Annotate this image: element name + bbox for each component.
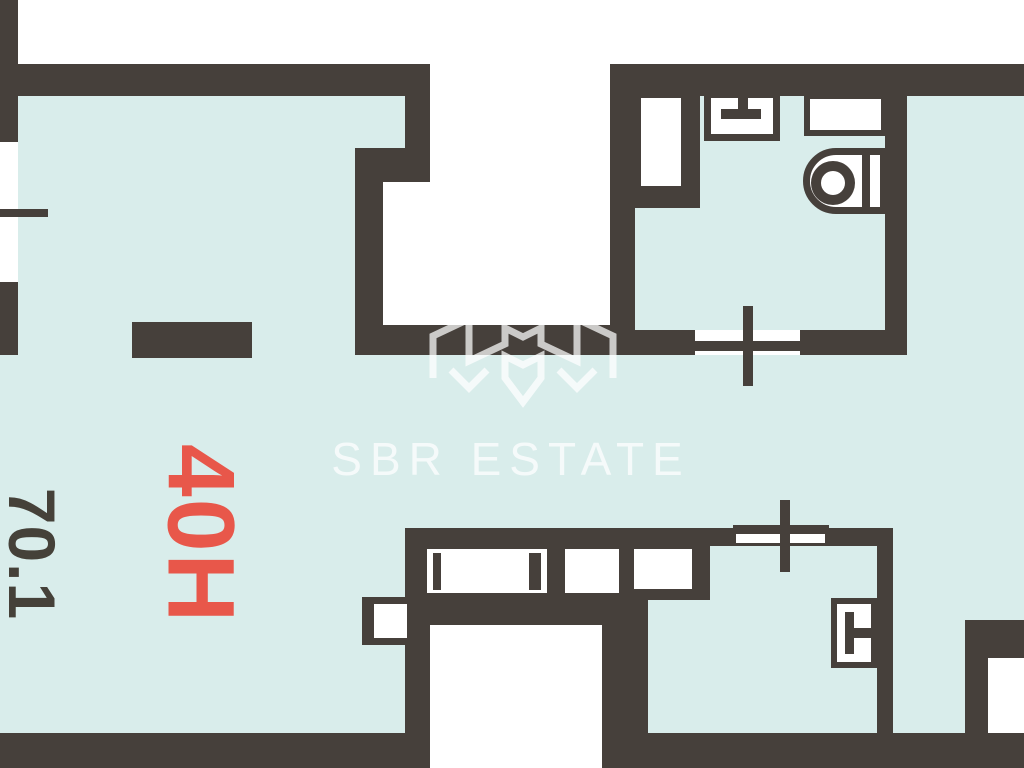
watermark-text: SBR ESTATE — [331, 432, 690, 486]
wall-bathroom-left — [610, 64, 635, 355]
wall-bathroom-right — [885, 93, 907, 355]
kitchen-counter-b — [565, 549, 619, 593]
area-label: 70.1 — [0, 488, 65, 620]
void-area — [430, 625, 602, 768]
unit-label: 40H — [153, 444, 248, 624]
shelf — [804, 93, 887, 136]
door-cross-icon — [743, 306, 753, 386]
wall-left-lower — [0, 282, 18, 355]
duct-opening — [988, 658, 1024, 733]
vent-shaft — [641, 98, 681, 186]
wall-top-left — [18, 64, 430, 96]
sink-tap-icon — [721, 109, 761, 119]
window-tick-icon — [0, 209, 48, 217]
niche-opening — [374, 604, 407, 638]
toilet-cistern-line — [862, 153, 870, 209]
wall-living-right-b — [355, 148, 383, 355]
watermark-logo-icon — [425, 316, 621, 408]
wall-bottom-left — [0, 733, 430, 768]
wall-bottom-right — [602, 733, 1024, 768]
door-handle-icon — [853, 628, 877, 638]
counter-divider — [529, 553, 541, 590]
floor-plan: SBR ESTATE 40H 70.1 — [0, 0, 1024, 768]
wall-partition — [132, 322, 252, 358]
wall-left-upper — [0, 0, 18, 142]
wall-top-right — [610, 64, 1024, 96]
wall-corridor-right — [877, 528, 893, 733]
window-cross-icon — [780, 500, 790, 572]
wall-void-right — [602, 620, 648, 733]
counter-divider — [433, 553, 441, 590]
room-living-floor — [0, 95, 430, 148]
toilet-bowl-icon — [821, 171, 845, 195]
kitchen-counter-c — [634, 549, 692, 589]
